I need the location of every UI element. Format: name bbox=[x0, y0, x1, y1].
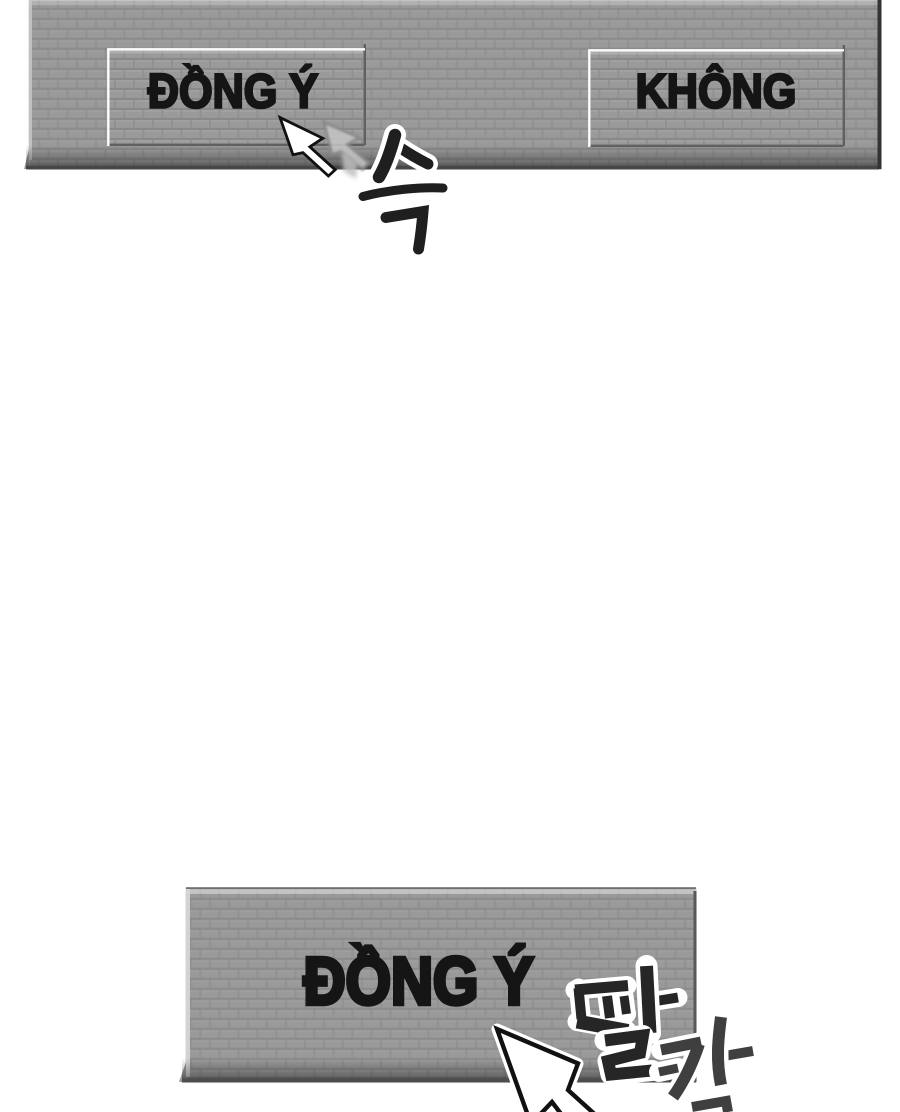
svg-text:KHÔNG: KHÔNG bbox=[636, 63, 797, 118]
svg-text:ĐỒNG Ý: ĐỒNG Ý bbox=[304, 943, 534, 1019]
svg-text:ĐỒNG Ý: ĐỒNG Ý bbox=[148, 63, 318, 118]
